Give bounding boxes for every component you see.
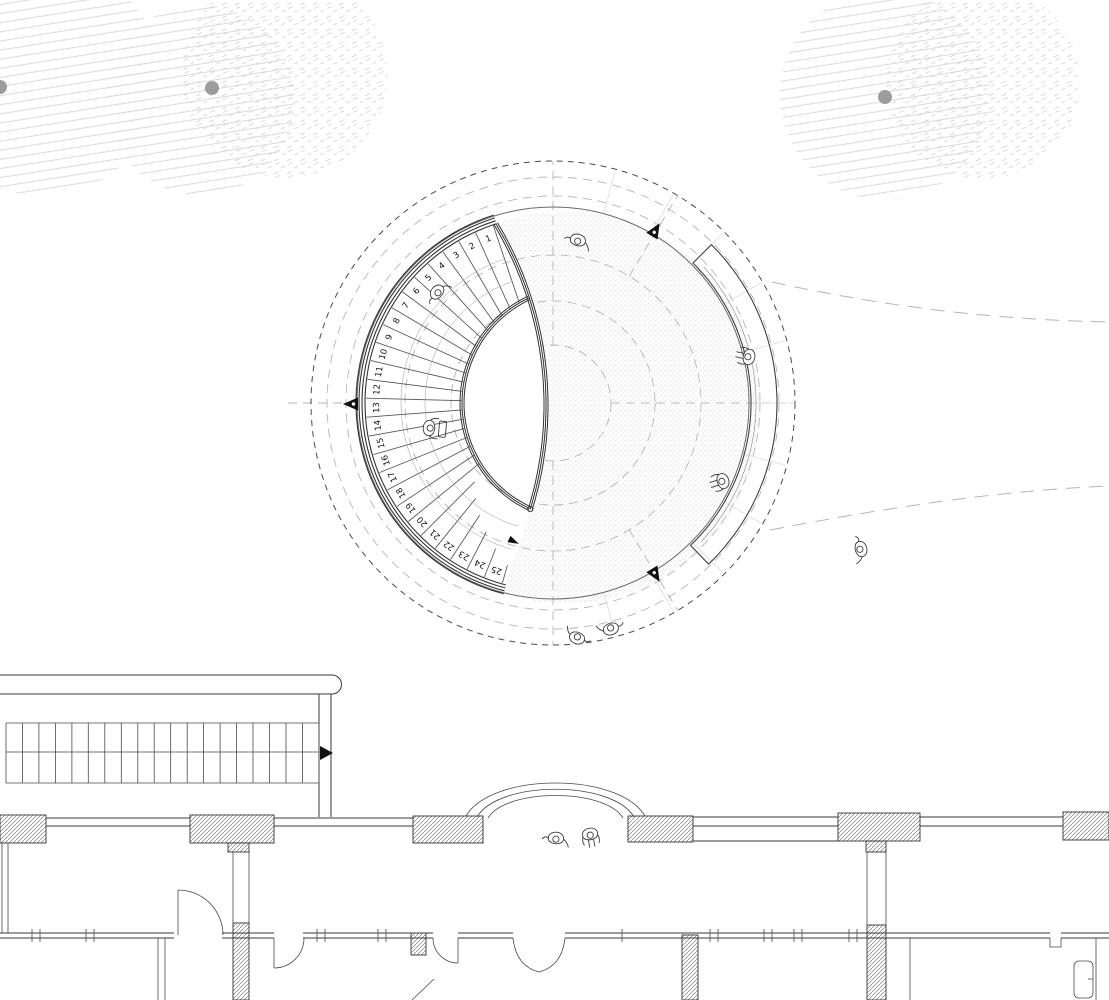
- stair-tread-number: 25: [490, 563, 503, 576]
- stair-tread: [383, 325, 469, 365]
- stair-tread: [459, 242, 502, 316]
- interior-walls: [0, 843, 1109, 1000]
- interior-wall-hatched: [682, 935, 698, 1000]
- trees-group: [0, 0, 1080, 200]
- stair-tread: [373, 428, 465, 454]
- wall-pier: [190, 815, 274, 843]
- stair-tread-number: 24: [473, 556, 487, 570]
- stair-tread-number: 9: [384, 333, 395, 342]
- wall-pier: [413, 816, 483, 843]
- straight-stair-treads: [6, 723, 319, 783]
- stair-tread-number: 11: [374, 366, 386, 378]
- person-figure: [542, 831, 570, 847]
- stair-tread-number: 21: [428, 527, 443, 542]
- stair-tread-number: 23: [457, 548, 471, 562]
- window-ticks: [32, 929, 857, 942]
- person-figure: [424, 278, 452, 307]
- wall-pier-stem: [866, 841, 886, 852]
- wall-pier: [838, 813, 920, 841]
- interior-wall-hatched: [867, 925, 886, 1000]
- path-edge-upper: [772, 282, 1109, 322]
- person-figure: [581, 827, 601, 848]
- double-door-swing: [513, 938, 565, 972]
- spiral-stair-group: 1234567891011121314151617181920212223242…: [356, 215, 548, 594]
- wall-pier-stem: [228, 843, 249, 852]
- stair-tread-number: 7: [401, 301, 412, 311]
- tree-trunk-dot: [878, 90, 892, 104]
- wall-pier: [0, 815, 46, 843]
- door-swing: [274, 938, 304, 968]
- stair-void-landing: [462, 298, 546, 509]
- tree-trunk-dot: [205, 81, 219, 95]
- pathway-dashed-lines: [770, 282, 1109, 530]
- stair-tread-number: 20: [415, 514, 430, 529]
- door-swing: [433, 938, 458, 963]
- door-swing: [178, 890, 223, 935]
- stair-tread-number: 12: [372, 384, 383, 396]
- stair-tread: [366, 398, 462, 401]
- stair-tread-number: 2: [467, 241, 476, 252]
- stair-tread-number: 13: [372, 402, 382, 413]
- stair-tread-number: 1: [484, 234, 493, 245]
- wall-pier: [628, 816, 693, 842]
- stair-tread-number: 14: [373, 419, 384, 431]
- stair-tread-number: 3: [452, 250, 462, 261]
- survey-level-marker-icon: [343, 398, 358, 411]
- stair-tread-number: 4: [437, 261, 448, 272]
- wall-pier: [1063, 812, 1109, 840]
- path-edge-lower: [770, 486, 1109, 530]
- sink-fixture: [1074, 961, 1093, 998]
- interior-wall-hatched: [233, 923, 249, 1000]
- stair-tread-number: 16: [380, 453, 393, 466]
- stair-tread-number: 6: [411, 286, 422, 297]
- drawing-canvas: 1234567891011121314151617181920212223242…: [0, 0, 1109, 1000]
- straight-stair: [6, 723, 319, 783]
- stair-tread-number: 18: [394, 485, 408, 499]
- wall-pier: [411, 933, 426, 955]
- person-figure: [850, 534, 870, 563]
- stair-tread-number: 17: [386, 470, 400, 484]
- person-figure: [422, 417, 446, 439]
- stair-tread: [421, 482, 474, 536]
- site-plan-drawing: 1234567891011121314151617181920212223242…: [0, 0, 1109, 1000]
- stair-tread-number: 19: [404, 500, 418, 515]
- entrance-canopy: [466, 783, 645, 818]
- stair-tread-number: 8: [392, 316, 403, 325]
- stair-tread-number: 5: [423, 273, 434, 284]
- stair-tread: [376, 342, 466, 373]
- stair-tread: [397, 455, 474, 506]
- paving-joint: [604, 171, 615, 213]
- door-leaf: [412, 979, 434, 1000]
- stair-tread-number: 22: [442, 538, 457, 552]
- stair-tread-number: 15: [376, 436, 388, 449]
- stair-tread-number: 10: [378, 348, 391, 361]
